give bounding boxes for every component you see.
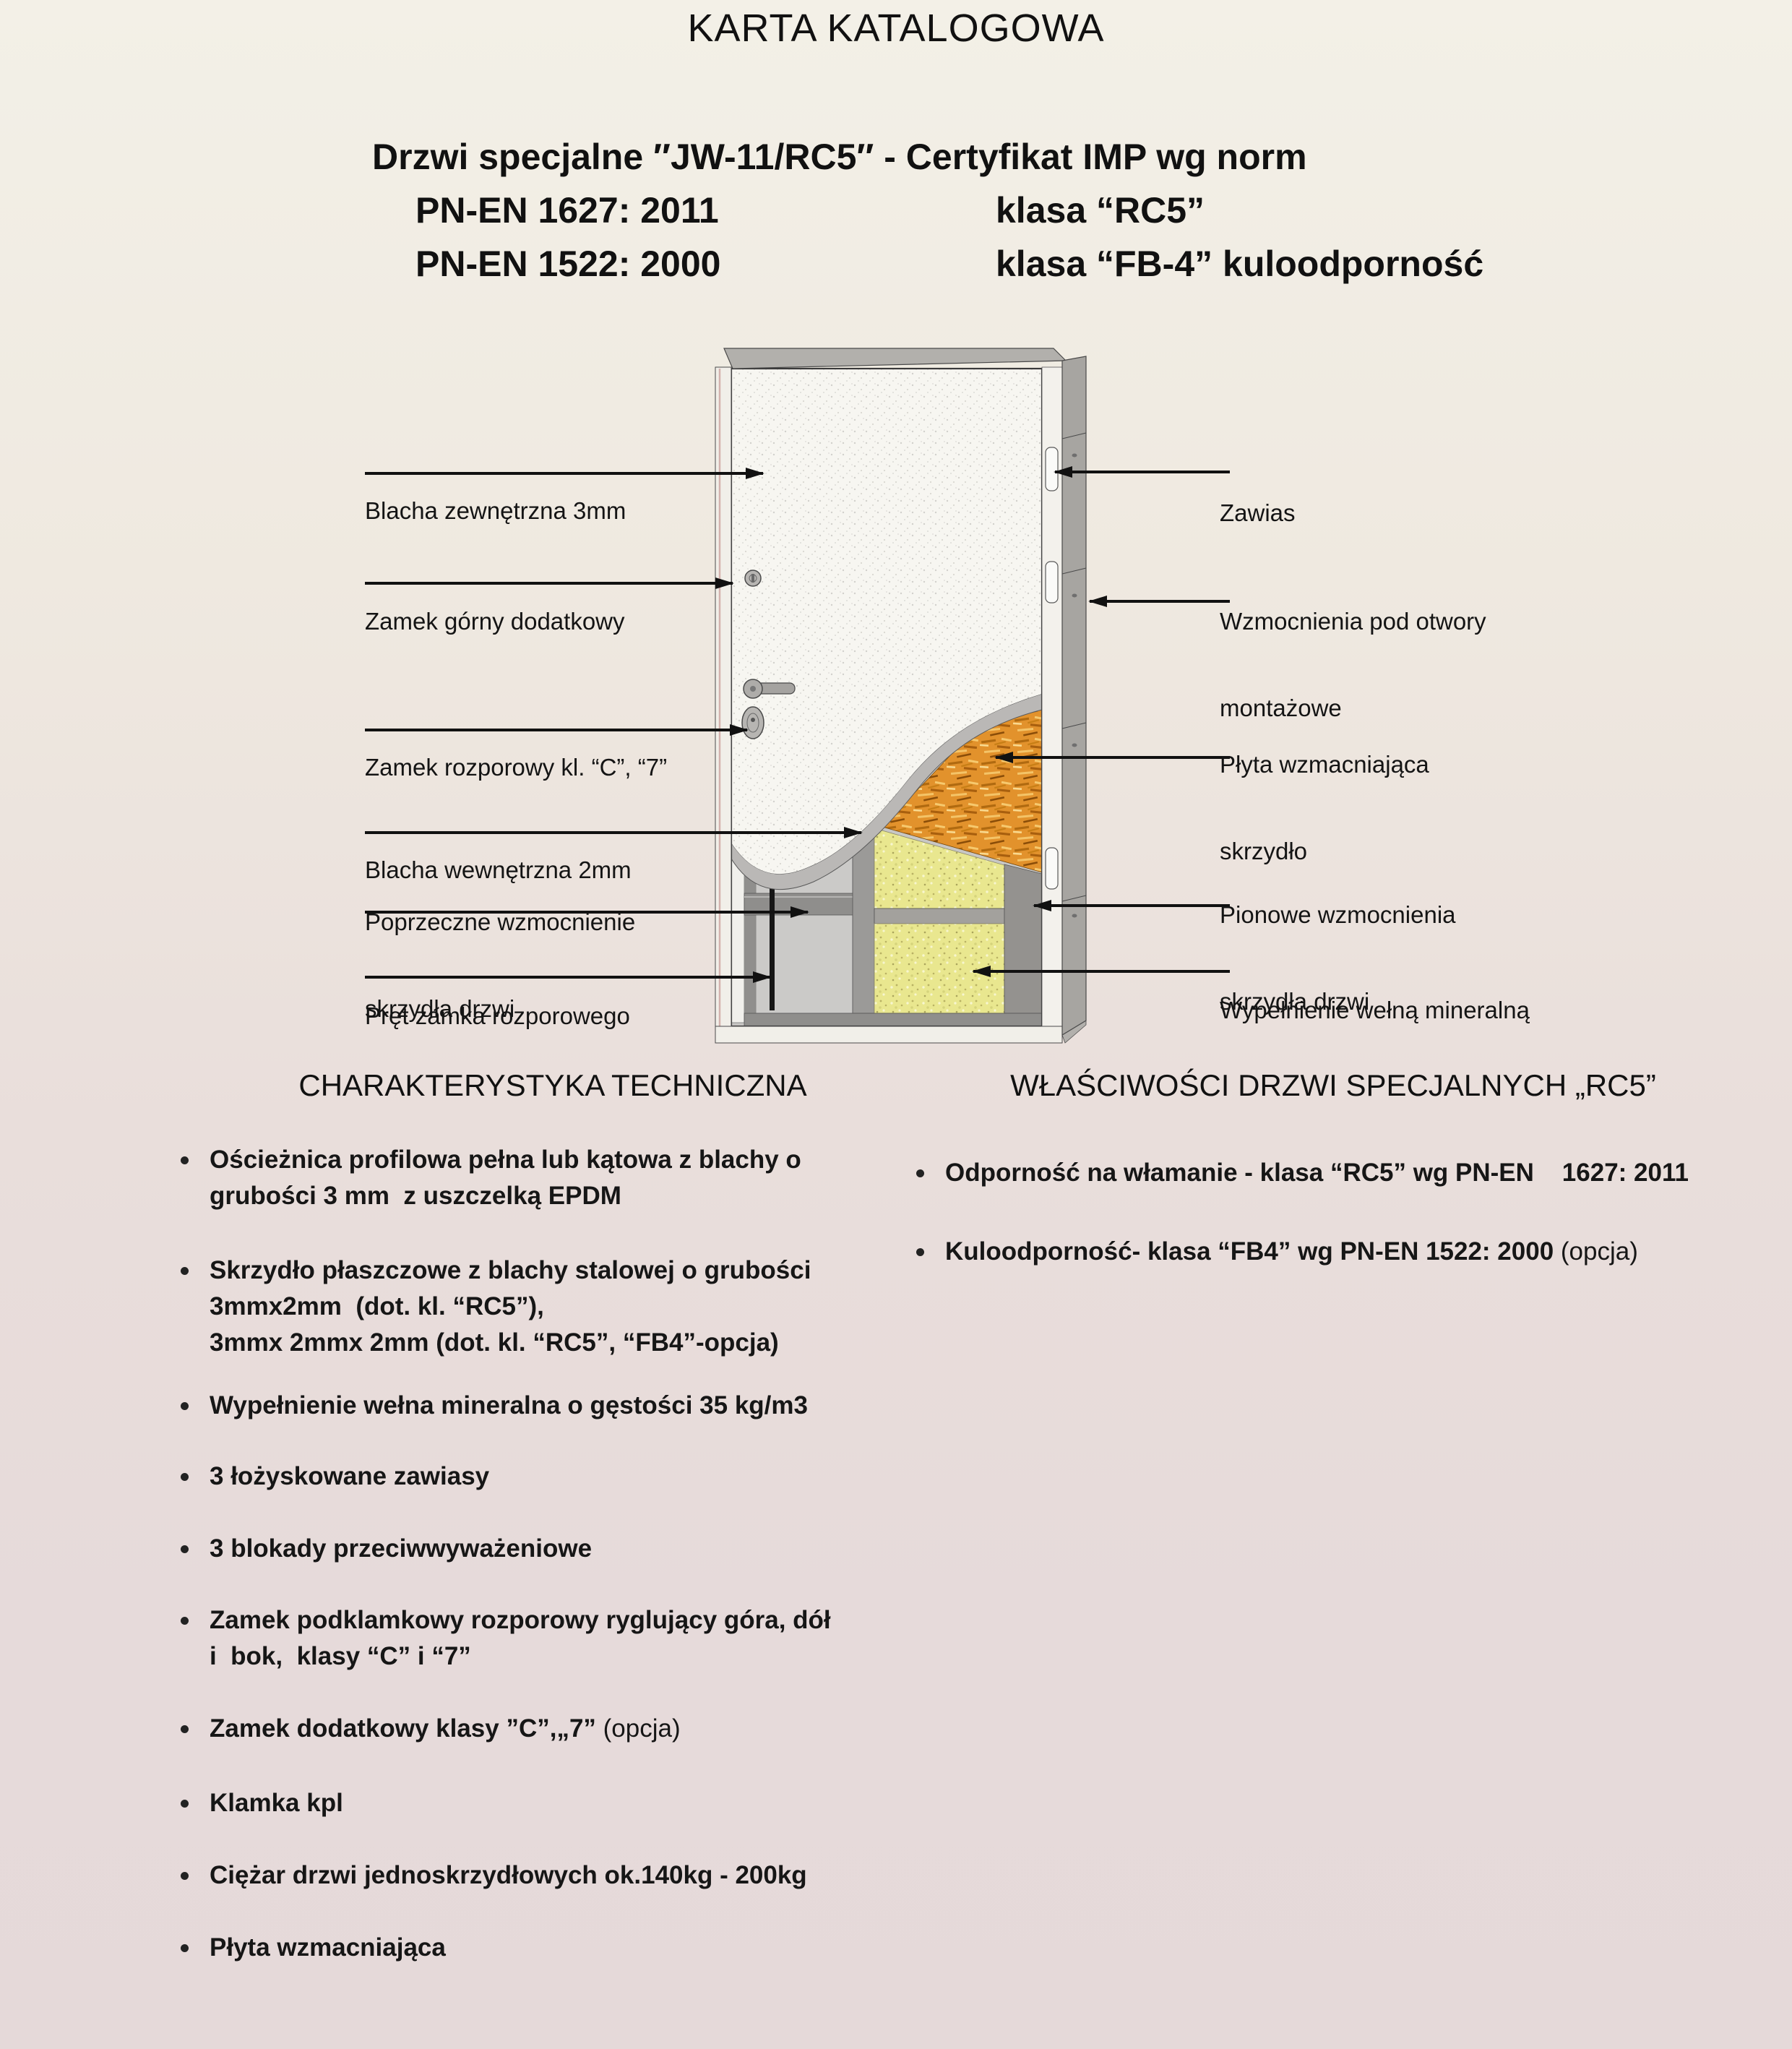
- bottom-rail: [744, 1013, 1042, 1026]
- bullet-line: Klamka kpl: [210, 1785, 1077, 1821]
- label-line: Pręt zamka rozporowego: [365, 1002, 630, 1031]
- bullet-line: i bok, klasy “C” i “7”: [210, 1638, 1077, 1675]
- frame-bottom: [715, 1026, 1062, 1043]
- label-line: Pionowe wzmocnienia: [1220, 901, 1456, 929]
- expansion-lock-rod: [770, 872, 775, 1010]
- bullet-line: Płyta wzmacniająca: [210, 1930, 1077, 1966]
- label-mineral-wool: Wypełnienie wełną mineralną: [1220, 938, 1530, 1083]
- frame-left: [715, 367, 731, 1035]
- label-line: Blacha zewnętrzna 3mm: [365, 497, 626, 525]
- expansion-lock: [742, 707, 764, 739]
- mounting-hole-mark: [1072, 594, 1077, 598]
- norm-1-class: klasa “RC5”: [996, 189, 1205, 231]
- door-cutaway-diagram: [714, 347, 1087, 1044]
- label-line: Poprzeczne wzmocnienie: [365, 908, 635, 937]
- bullet-line: Zamek podklamkowy rozporowy ryglujący gó…: [210, 1602, 1077, 1638]
- label-lock-rod: Pręt zamka rozporowego: [365, 944, 630, 1088]
- norm-2: PN-EN 1522: 2000: [415, 243, 720, 285]
- label-upper-lock: Zamek górny dodatkowy: [365, 549, 625, 694]
- bullet-icon: [181, 1617, 189, 1625]
- catalog-sheet: KARTA KATALOGOWA Drzwi specjalne ″JW-11/…: [0, 0, 1792, 2049]
- bullet-icon: [916, 1248, 924, 1256]
- label-line: Zamek górny dodatkowy: [365, 607, 625, 636]
- bullet-icon: [181, 1944, 189, 1952]
- product-headline: Drzwi specjalne ″JW-11/RC5″ - Certyfikat…: [372, 136, 1307, 178]
- bullet-icon: [181, 1156, 189, 1164]
- bullet-icon: [181, 1800, 189, 1808]
- bullet-text: Kuloodporność- klasa “FB4” wg PN-EN 1522…: [945, 1237, 1554, 1266]
- bullet-line: Zamek dodatkowy klasy ”C”,„7” (opcja): [210, 1711, 1077, 1747]
- bullet-icon: [181, 1402, 189, 1410]
- bullet-icon: [181, 1267, 189, 1275]
- hinge-top: [1046, 447, 1058, 491]
- bullet-icon: [181, 1473, 189, 1481]
- bullet-icon: [181, 1872, 189, 1880]
- mid-beam: [874, 908, 1004, 924]
- label-line: Zawias: [1220, 499, 1296, 528]
- hinge-bottom: [1046, 848, 1058, 889]
- mounting-hole-mark: [1072, 914, 1077, 918]
- mounting-hole-mark: [1072, 454, 1077, 458]
- bullet-icon: [181, 1545, 189, 1553]
- bullet-text: Zamek dodatkowy klasy ”C”,„7”: [210, 1714, 596, 1743]
- bullet-line: 3mmx2mm (dot. kl. “RC5”),: [210, 1289, 1077, 1325]
- props-section-heading: WŁAŚCIWOŚCI DRZWI SPECJALNYCH „RC5”: [972, 1068, 1694, 1103]
- bullet-line: Odporność na włamanie - klasa “RC5” wg P…: [945, 1155, 1792, 1191]
- bullet-icon: [916, 1169, 924, 1177]
- bullet-line: Kuloodporność- klasa “FB4” wg PN-EN 1522…: [945, 1234, 1792, 1270]
- norm-1: PN-EN 1627: 2011: [415, 189, 719, 231]
- vertical-reinforcement-post: [1004, 864, 1042, 1013]
- bullet-line: 3mmx 2mmx 2mm (dot. kl. “RC5”, “FB4”-opc…: [210, 1325, 1077, 1361]
- norm-2-class: klasa “FB-4” kuloodporność: [996, 243, 1483, 285]
- page-title: KARTA KATALOGOWA: [0, 6, 1792, 51]
- bullet-suffix: (opcja): [1554, 1237, 1638, 1266]
- bullet-line: 3 łożyskowane zawiasy: [210, 1459, 1077, 1495]
- bullet-line: Wypełnienie wełna mineralna o gęstości 3…: [210, 1388, 1077, 1424]
- frame-top-face: [724, 348, 1066, 369]
- label-line: Płyta wzmacniająca: [1220, 750, 1429, 779]
- tech-section-heading: CHARAKTERYSTYKA TECHNICZNA: [191, 1068, 914, 1103]
- bullet-suffix: (opcja): [596, 1714, 681, 1743]
- upper-additional-lock: [745, 570, 761, 586]
- hinge-middle: [1046, 562, 1058, 603]
- label-line: Wypełnienie wełną mineralną: [1220, 996, 1530, 1025]
- label-line: Zamek rozporowy kl. “C”, “7”: [365, 753, 667, 782]
- frame-right-face: [1062, 356, 1086, 1035]
- bullet-icon: [181, 1725, 189, 1733]
- label-line: Wzmocnienia pod otwory: [1220, 607, 1486, 636]
- mineral-wool-lower: [874, 924, 1004, 1013]
- mounting-hole-mark: [1072, 744, 1077, 747]
- bullet-line: 3 blokady przeciwwyważeniowe: [210, 1531, 1077, 1567]
- bullet-line: Ciężar drzwi jednoskrzydłowych ok.140kg …: [210, 1857, 1077, 1894]
